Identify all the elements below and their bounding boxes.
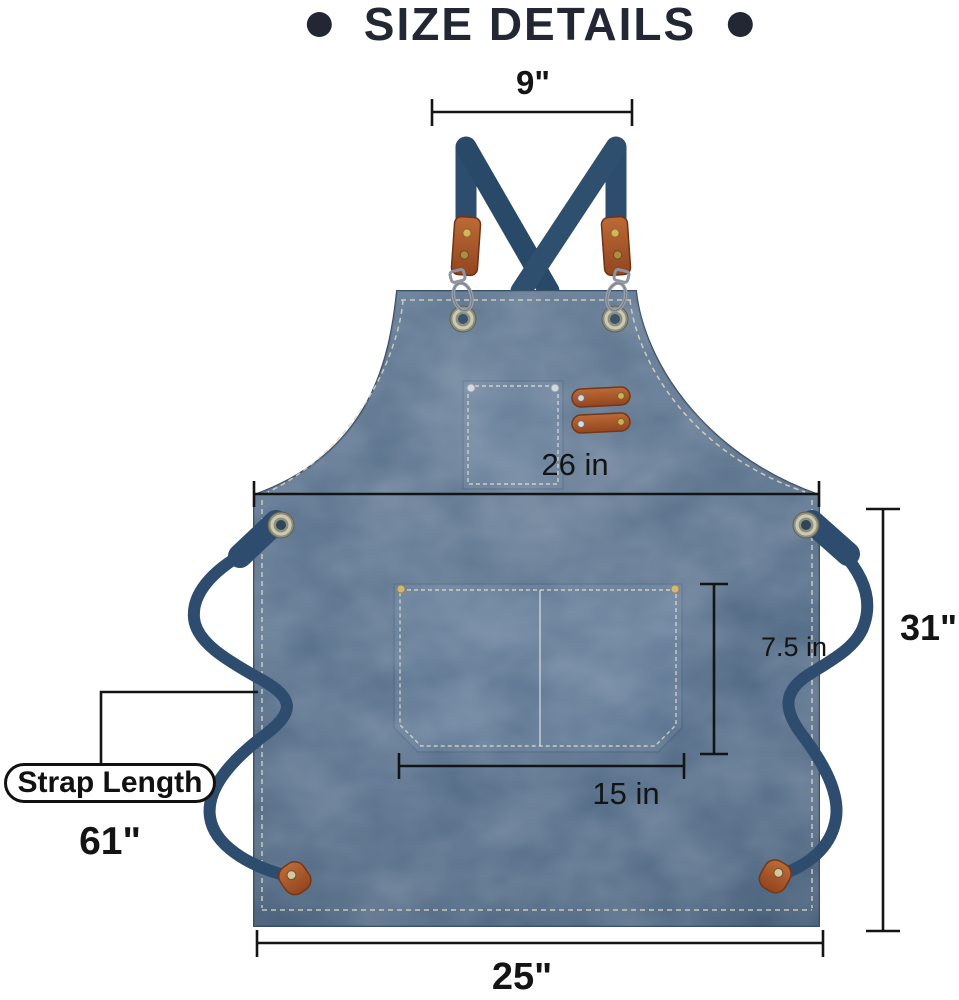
cross-back-straps [466,147,616,291]
apron-body [254,291,819,926]
dim-strap-length: 61" [79,820,141,864]
dim-body-height: 31" [900,607,957,649]
size-details-figure: SIZE DETAILS [0,0,959,1000]
dim-pocket-height: 7.5 in [761,632,827,663]
strap-length-label: Strap Length [4,763,216,803]
dim-chest-width: 26 in [541,447,608,483]
dim-strap-top-width: 9" [516,64,550,102]
dim-pocket-width: 15 in [592,776,659,812]
apron-illustration [0,0,959,1000]
dim-bottom-width: 25" [492,956,552,999]
